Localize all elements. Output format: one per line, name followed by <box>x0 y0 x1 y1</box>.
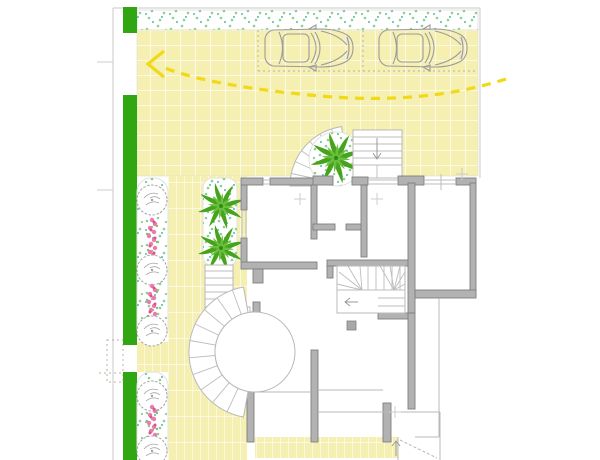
deciduous-tree <box>137 316 167 346</box>
deciduous-tree <box>137 255 167 285</box>
interior-winder-stair <box>337 266 405 313</box>
hedge <box>123 7 137 460</box>
pedestrian-gate-path <box>137 342 168 372</box>
entrance-porch <box>189 265 295 417</box>
rear-terrace <box>255 437 398 458</box>
floor-plan-canvas <box>0 0 600 460</box>
hedge-segment <box>123 372 137 460</box>
hedge-segment <box>123 7 137 33</box>
flower-border-lower <box>137 372 168 460</box>
deciduous-tree <box>137 185 167 215</box>
gate-swing-outline <box>107 340 123 382</box>
column <box>347 321 356 330</box>
straight-entry-stair <box>353 130 402 178</box>
hedge-segment <box>123 95 137 345</box>
flower-border-upper <box>137 178 168 346</box>
site-plan <box>0 0 600 460</box>
palm-bed <box>198 178 244 271</box>
round-porch <box>215 312 295 392</box>
